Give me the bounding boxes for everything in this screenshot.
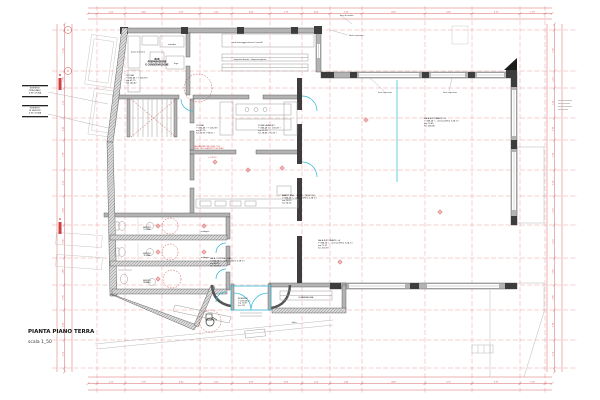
section-marker	[59, 78, 62, 90]
dim-text: 1,45	[62, 48, 64, 53]
dim-text: 2,25	[552, 77, 554, 82]
section-marker	[59, 222, 62, 234]
label-note-salita: salita	[292, 321, 297, 324]
storage-shelves	[222, 34, 314, 71]
site-box-top-right	[452, 26, 468, 44]
dim-text: 2,30	[552, 322, 554, 327]
label-scale: scala 1_50	[28, 339, 52, 345]
dim-text: 2,55	[552, 269, 554, 274]
windows	[317, 44, 516, 288]
dim-text: 3,45	[141, 11, 146, 13]
dim-text: 2,25	[62, 180, 64, 185]
dim-text: 1,50	[552, 48, 554, 53]
dim-text: 3,70	[446, 381, 451, 383]
dim-text: 2,75	[284, 11, 289, 13]
walls-layer	[104, 26, 517, 330]
dim-text: 2,25	[552, 239, 554, 244]
dim-text: 2,20	[314, 381, 319, 383]
label-room-zona-lavaggio: h= 28,86 ( 15,39 )	[258, 132, 277, 134]
labels-layer: PIANTA PIANO TERRAscala 1_50INGRESSOPRIN…	[28, 15, 459, 345]
label-room-cucina-2: h= 45,39 ( 98,92 )	[196, 132, 215, 134]
label-room-banco-bar: h= 54,30	[282, 202, 292, 204]
note-leader-lines	[330, 15, 452, 91]
label-note-roof-1: linea copertura	[378, 91, 392, 94]
floor-plan-sheet: PIANTA PIANO TERRA 1,203,452,901,503,602…	[0, 0, 600, 400]
label-note-stoccaggio: zona stoccaggio attrezzi / carrelli	[231, 41, 263, 44]
level-target-icon	[337, 259, 342, 264]
dim-text: 2,60	[62, 269, 64, 274]
dim-text: 2,20	[552, 180, 554, 185]
dim-text: 2,10	[552, 351, 554, 356]
label-note-armadio: armadio	[168, 43, 177, 46]
dim-text: 1,75	[552, 152, 554, 157]
dim-text: 3,65	[446, 11, 451, 13]
dim-text: B	[59, 73, 62, 77]
dim-text: 2,90	[179, 11, 184, 13]
level-target-icon	[155, 223, 160, 228]
dim-text: 2	[67, 69, 69, 73]
label-note-piano-lavoro: piano di lavoro	[131, 51, 146, 54]
dim-text: 3,60	[249, 11, 254, 13]
planter-bottom-left	[56, 232, 103, 269]
label-note-frigo: frigo	[174, 62, 179, 65]
marks-layer: 12BA	[59, 27, 443, 282]
label-room-guardaroba: GUARDAROBA	[299, 296, 314, 299]
label-room-sala-b: h= 318,08	[424, 125, 435, 127]
label-room-cucina-1: h= 143,82	[126, 82, 137, 84]
dim-text: 1,95	[62, 295, 64, 300]
dim-text: A	[59, 217, 62, 221]
level-target-icon	[155, 276, 160, 281]
entrance-curved-wall-right	[271, 285, 290, 308]
dim-text: 2,95	[141, 381, 146, 383]
dim-text: 4,90	[391, 11, 396, 13]
dim-text: 2,35	[552, 126, 554, 131]
level-target-icon	[437, 209, 442, 214]
label-note-quota: + 105,30	[208, 156, 217, 159]
label-room-ingresso: h= 315	[238, 305, 246, 307]
label-note-antibagno-1: antibagno	[201, 230, 210, 233]
label-room-wc-3: DISABILI	[143, 281, 151, 284]
dim-text: 2,45	[344, 381, 349, 383]
label-note-deposito: deposito derrate - dispensa giorno	[234, 58, 267, 61]
label-room-bar-prep: E CONSERVAZIONE	[145, 63, 169, 66]
label-note-limite: limite copertura	[349, 34, 363, 37]
pavement-edge	[95, 320, 333, 349]
dim-text: 1,90	[530, 381, 535, 383]
dim-text: 2,10	[552, 208, 554, 213]
level-target-icon	[201, 223, 206, 228]
floor-plan-drawing: PIANTA PIANO TERRA 1,203,452,901,503,602…	[0, 0, 600, 400]
label-room-wc-2: DONNE	[144, 255, 151, 257]
dim-text: 1,15	[62, 100, 64, 105]
grid-layer	[52, 6, 578, 394]
dim-text: 3,40	[179, 381, 184, 383]
dim-text: 2,30	[62, 239, 64, 244]
dim-text: 2,30	[62, 77, 64, 82]
label-room-sala-cottura: h= 313,93	[210, 265, 221, 267]
label-note-antibagno-2: antibagno	[201, 256, 210, 259]
dim-text: 2,35	[62, 322, 64, 327]
label-title: PIANTA PIANO TERRA	[28, 329, 95, 335]
level-target-icon	[212, 159, 217, 164]
dim-text: 3,75	[494, 381, 499, 383]
dim-text: 2,50	[214, 381, 219, 383]
dim-text: 2,05	[62, 208, 64, 213]
label-note-paving: PEND. PER QUADROTTI SIFONATI	[194, 147, 224, 150]
entrance-steps	[173, 305, 262, 323]
label-legend-1: 4 IN CUCINA	[29, 91, 42, 94]
label-room-wc-1: UOMINI	[144, 229, 151, 231]
dim-text: 4,05	[314, 11, 319, 13]
right-margin-notes	[558, 100, 572, 110]
dim-text: 2,15	[62, 351, 64, 356]
dim-text: 2,10	[109, 381, 114, 383]
corner-triangle-marker	[504, 58, 517, 70]
dim-text: 3,70	[494, 11, 499, 13]
dim-text: 1,70	[62, 152, 64, 157]
dim-text: 1	[67, 28, 69, 32]
dim-text: 1,95	[530, 11, 535, 13]
dim-text: 4,85	[391, 381, 396, 383]
level-target-icon	[201, 249, 206, 254]
dim-text: 2,40	[62, 126, 64, 131]
terrace-outline	[472, 147, 544, 377]
label-note-roof-2: linea copertura	[443, 91, 457, 94]
dim-text: 1,20	[552, 100, 554, 105]
label-room-sala-a: h= 313,93	[318, 247, 329, 249]
label-legend-2: 4 IN CUCINA	[29, 111, 42, 114]
dim-text: 3,05	[284, 381, 289, 383]
dim-text: 1,50	[214, 11, 219, 13]
level-target-icon	[155, 249, 160, 254]
dim-text: 1,20	[109, 11, 114, 13]
dim-text: 2,95	[249, 381, 254, 383]
dim-text: 2,00	[552, 295, 554, 300]
label-note-confine: linea di confine	[340, 15, 355, 17]
level-target-icon	[245, 167, 250, 172]
dim-text: 2,35	[344, 11, 349, 13]
